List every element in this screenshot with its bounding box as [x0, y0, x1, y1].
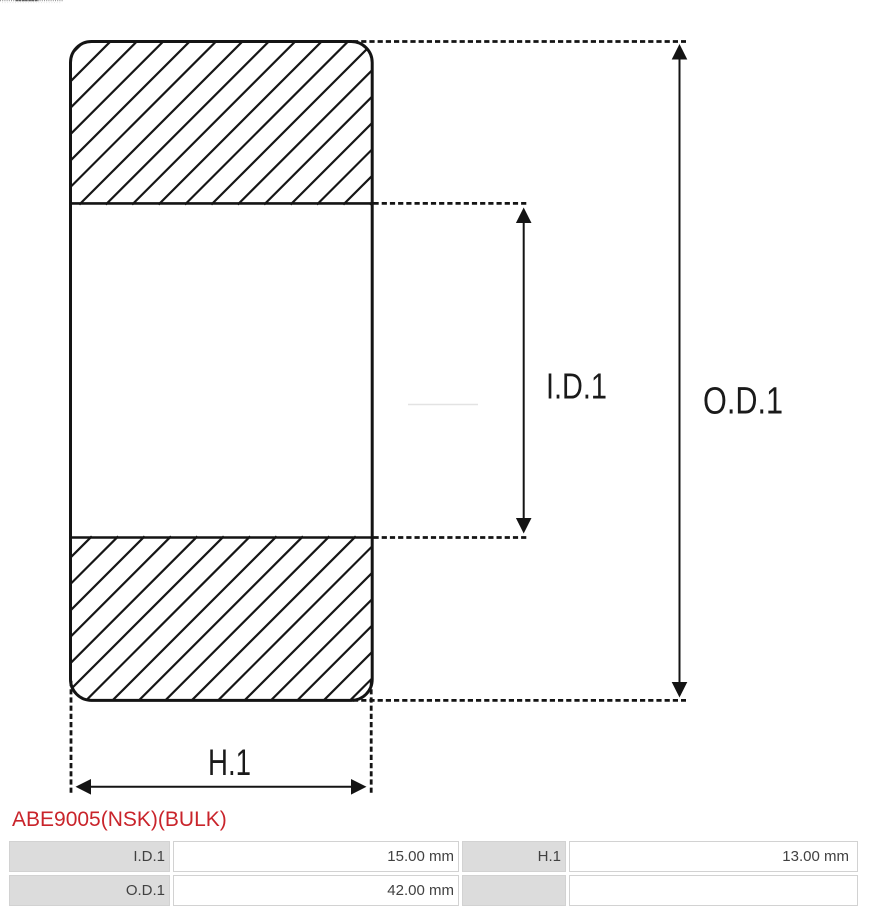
svg-text:O.D.1: O.D.1 — [703, 381, 783, 423]
svg-text:I.D.1: I.D.1 — [546, 366, 607, 407]
svg-text:H.1: H.1 — [208, 742, 251, 783]
